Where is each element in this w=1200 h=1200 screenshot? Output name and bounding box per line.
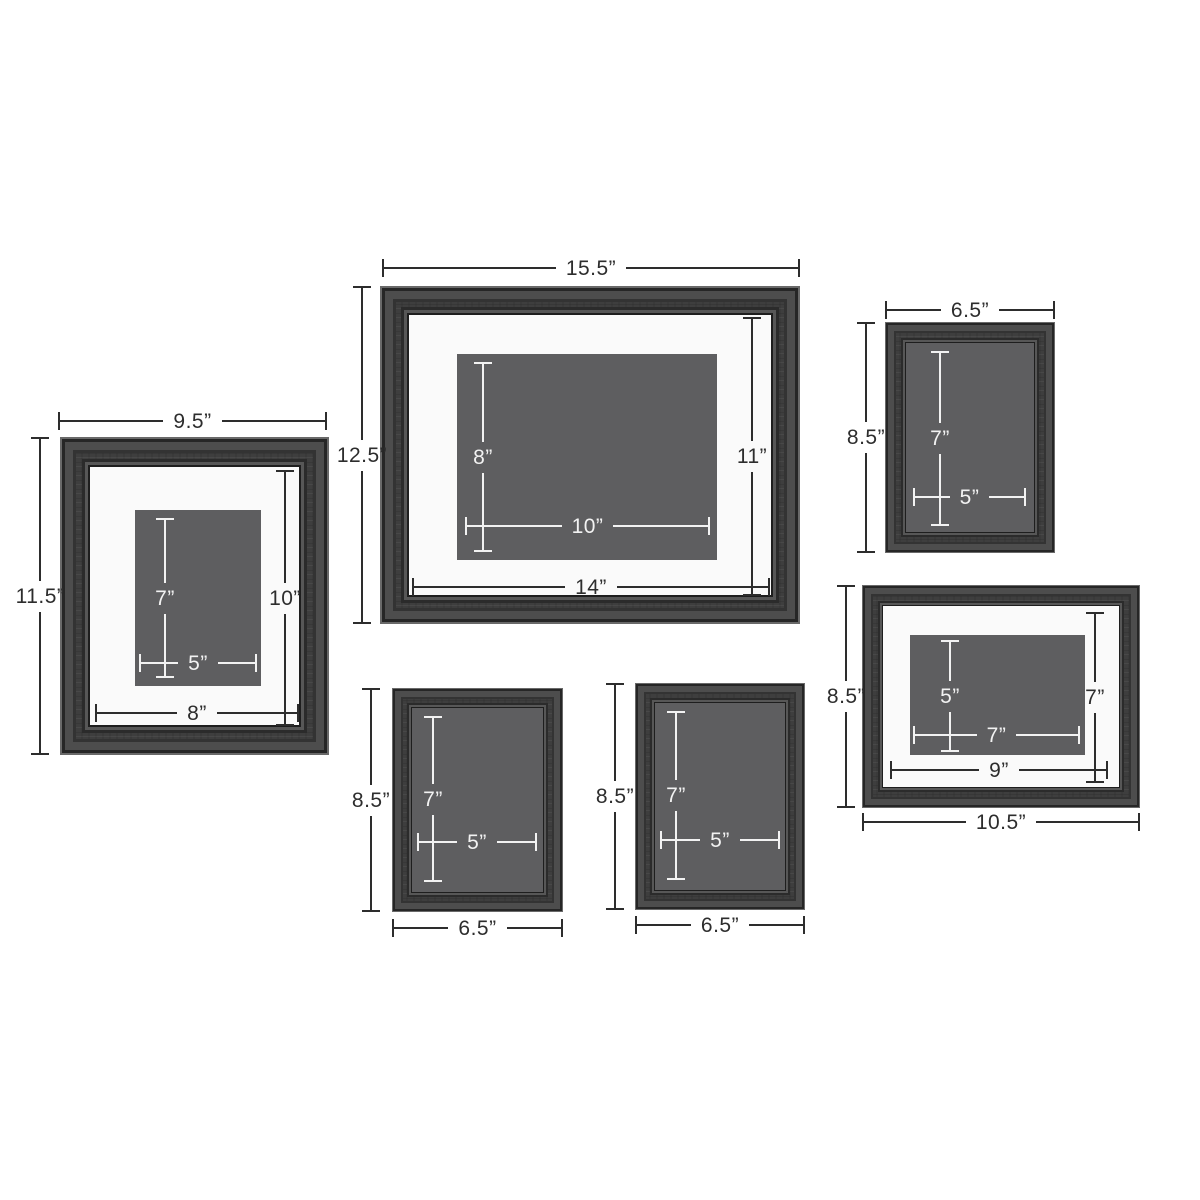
- dim-label: 8.5”: [827, 681, 865, 712]
- dim-line: [865, 322, 867, 422]
- dim-label: 8”: [473, 442, 493, 473]
- dim-tick: [857, 551, 875, 553]
- dim-tick: [837, 806, 855, 808]
- dim-line: [164, 614, 166, 679]
- frame-left-mat: [90, 467, 299, 725]
- dim-line: [862, 821, 966, 823]
- dim-tick: [31, 437, 49, 439]
- dim-tick: [913, 488, 915, 506]
- dim-line: [39, 612, 41, 756]
- dim-line: [412, 586, 565, 588]
- dim-tick: [837, 585, 855, 587]
- dim-tick: [1086, 612, 1104, 614]
- dim-label: 11”: [737, 441, 767, 472]
- dim-line: [417, 841, 457, 843]
- dim-tick: [417, 833, 419, 851]
- dim-line: [218, 662, 257, 664]
- dim-label: 6.5”: [448, 918, 506, 939]
- dim-line: [865, 453, 867, 553]
- dim-label: 10.5”: [966, 812, 1036, 833]
- dim-line: [614, 683, 616, 781]
- dim-tick: [58, 412, 60, 430]
- dim-line: [1016, 734, 1080, 736]
- dim-label: 8.5”: [847, 422, 885, 453]
- dim-line: [613, 525, 710, 527]
- dim-tick: [392, 919, 394, 937]
- dim-tick: [708, 517, 710, 535]
- dim-line: [890, 769, 979, 771]
- dim-line: [217, 712, 299, 714]
- dim-label: 15.5”: [556, 258, 626, 279]
- dim-line: [392, 927, 448, 929]
- dim-line: [939, 454, 941, 526]
- dim-line: [845, 585, 847, 681]
- dim-tick: [95, 704, 97, 722]
- dim-label: 10”: [562, 516, 614, 537]
- dim-tick: [424, 880, 442, 882]
- dim-line: [675, 811, 677, 880]
- dim-label: 10”: [269, 583, 301, 614]
- dim-line: [660, 839, 700, 841]
- dim-tick: [606, 683, 624, 685]
- dim-label: 7”: [930, 423, 950, 454]
- dim-tick: [353, 622, 371, 624]
- dim-line: [361, 286, 363, 440]
- dim-label: 11.5”: [16, 581, 65, 612]
- dim-line: [382, 267, 556, 269]
- dim-line: [635, 924, 691, 926]
- dim-tick: [465, 517, 467, 535]
- dim-tick: [535, 833, 537, 851]
- dim-line: [39, 437, 41, 581]
- frame-set-dimension-diagram: 9.5” 11.5” 8” 10” 7” 5” 15.5” 12.5” 14” …: [0, 0, 1200, 1200]
- dim-line: [626, 267, 800, 269]
- dim-tick: [660, 831, 662, 849]
- dim-line: [482, 473, 484, 553]
- dim-line: [465, 525, 562, 527]
- dim-line: [361, 471, 363, 625]
- dim-tick: [1053, 301, 1055, 319]
- dim-tick: [857, 322, 875, 324]
- dim-line: [370, 816, 372, 913]
- dim-tick: [156, 676, 174, 678]
- dim-label: 9.5”: [163, 411, 221, 432]
- dim-label: 9”: [979, 760, 1019, 781]
- dim-tick: [297, 704, 299, 722]
- dim-line: [614, 812, 616, 910]
- dim-tick: [474, 550, 492, 552]
- dim-label: 7”: [155, 583, 175, 614]
- dim-tick: [474, 362, 492, 364]
- dim-label: 5”: [457, 832, 497, 853]
- dim-line: [139, 662, 178, 664]
- dim-line: [58, 420, 163, 422]
- dim-line: [989, 496, 1026, 498]
- dim-label: 7”: [1085, 682, 1105, 713]
- dim-line: [1094, 713, 1096, 783]
- dim-line: [949, 712, 951, 753]
- dim-line: [939, 351, 941, 423]
- dim-tick: [31, 753, 49, 755]
- dim-tick: [156, 518, 174, 520]
- dim-tick: [885, 301, 887, 319]
- dim-tick: [768, 578, 770, 596]
- dim-tick: [1024, 488, 1026, 506]
- dim-tick: [931, 524, 949, 526]
- dim-tick: [1106, 761, 1108, 779]
- dim-label: 5”: [940, 681, 960, 712]
- dim-line: [949, 640, 951, 681]
- frame-bottom-middle-6.5x8.5: [635, 683, 805, 910]
- dim-line: [164, 518, 166, 583]
- dim-tick: [890, 761, 892, 779]
- dim-label: 7”: [977, 725, 1017, 746]
- dim-tick: [803, 916, 805, 934]
- dim-tick: [382, 259, 384, 277]
- dim-label: 5”: [178, 653, 218, 674]
- dim-tick: [913, 726, 915, 744]
- dim-line: [284, 470, 286, 583]
- dim-line: [751, 317, 753, 441]
- dim-tick: [931, 351, 949, 353]
- dim-tick: [412, 578, 414, 596]
- dim-label: 12.5”: [337, 440, 387, 471]
- frame-bottom-left-6.5x8.5: [392, 688, 563, 912]
- dim-line: [749, 924, 805, 926]
- dim-tick: [862, 813, 864, 831]
- dim-tick: [743, 317, 761, 319]
- dim-tick: [778, 831, 780, 849]
- dim-line: [751, 472, 753, 596]
- dim-label: 7”: [423, 784, 443, 815]
- dim-tick: [255, 654, 257, 672]
- dim-tick: [139, 654, 141, 672]
- dim-line: [222, 420, 327, 422]
- dim-tick: [1138, 813, 1140, 831]
- dim-tick: [362, 688, 380, 690]
- dim-line: [482, 362, 484, 442]
- dim-line: [432, 716, 434, 784]
- dim-label: 8”: [177, 703, 217, 724]
- dim-label: 6.5”: [941, 300, 999, 321]
- dim-tick: [325, 412, 327, 430]
- dim-line: [845, 712, 847, 808]
- dim-label: 8.5”: [352, 785, 390, 816]
- dim-tick: [276, 724, 294, 726]
- dim-line: [885, 309, 941, 311]
- dim-label: 5”: [700, 830, 740, 851]
- dim-line: [913, 734, 977, 736]
- dim-line: [284, 614, 286, 727]
- dim-tick: [1078, 726, 1080, 744]
- frame-top-right-6.5x8.5: [885, 322, 1055, 553]
- dim-tick: [561, 919, 563, 937]
- dim-tick: [606, 908, 624, 910]
- dim-line: [370, 688, 372, 785]
- dim-line: [95, 712, 177, 714]
- dim-line: [507, 927, 563, 929]
- dim-line: [675, 711, 677, 780]
- dim-tick: [941, 640, 959, 642]
- dim-label: 5”: [950, 487, 990, 508]
- dim-tick: [362, 910, 380, 912]
- dim-line: [432, 815, 434, 883]
- dim-tick: [424, 716, 442, 718]
- dim-tick: [743, 594, 761, 596]
- dim-tick: [276, 470, 294, 472]
- dim-label: 14”: [565, 577, 617, 598]
- dim-line: [913, 496, 950, 498]
- dim-line: [999, 309, 1055, 311]
- dim-line: [1094, 612, 1096, 682]
- dim-tick: [798, 259, 800, 277]
- dim-tick: [941, 750, 959, 752]
- dim-line: [617, 586, 770, 588]
- dim-label: 7”: [666, 780, 686, 811]
- dim-line: [740, 839, 780, 841]
- dim-tick: [667, 878, 685, 880]
- frame-center-mat: [409, 315, 771, 595]
- dim-tick: [635, 916, 637, 934]
- dim-tick: [1086, 781, 1104, 783]
- dim-tick: [667, 711, 685, 713]
- dim-line: [497, 841, 537, 843]
- dim-label: 8.5”: [596, 781, 634, 812]
- dim-tick: [353, 286, 371, 288]
- dim-label: 6.5”: [691, 915, 749, 936]
- dim-line: [1036, 821, 1140, 823]
